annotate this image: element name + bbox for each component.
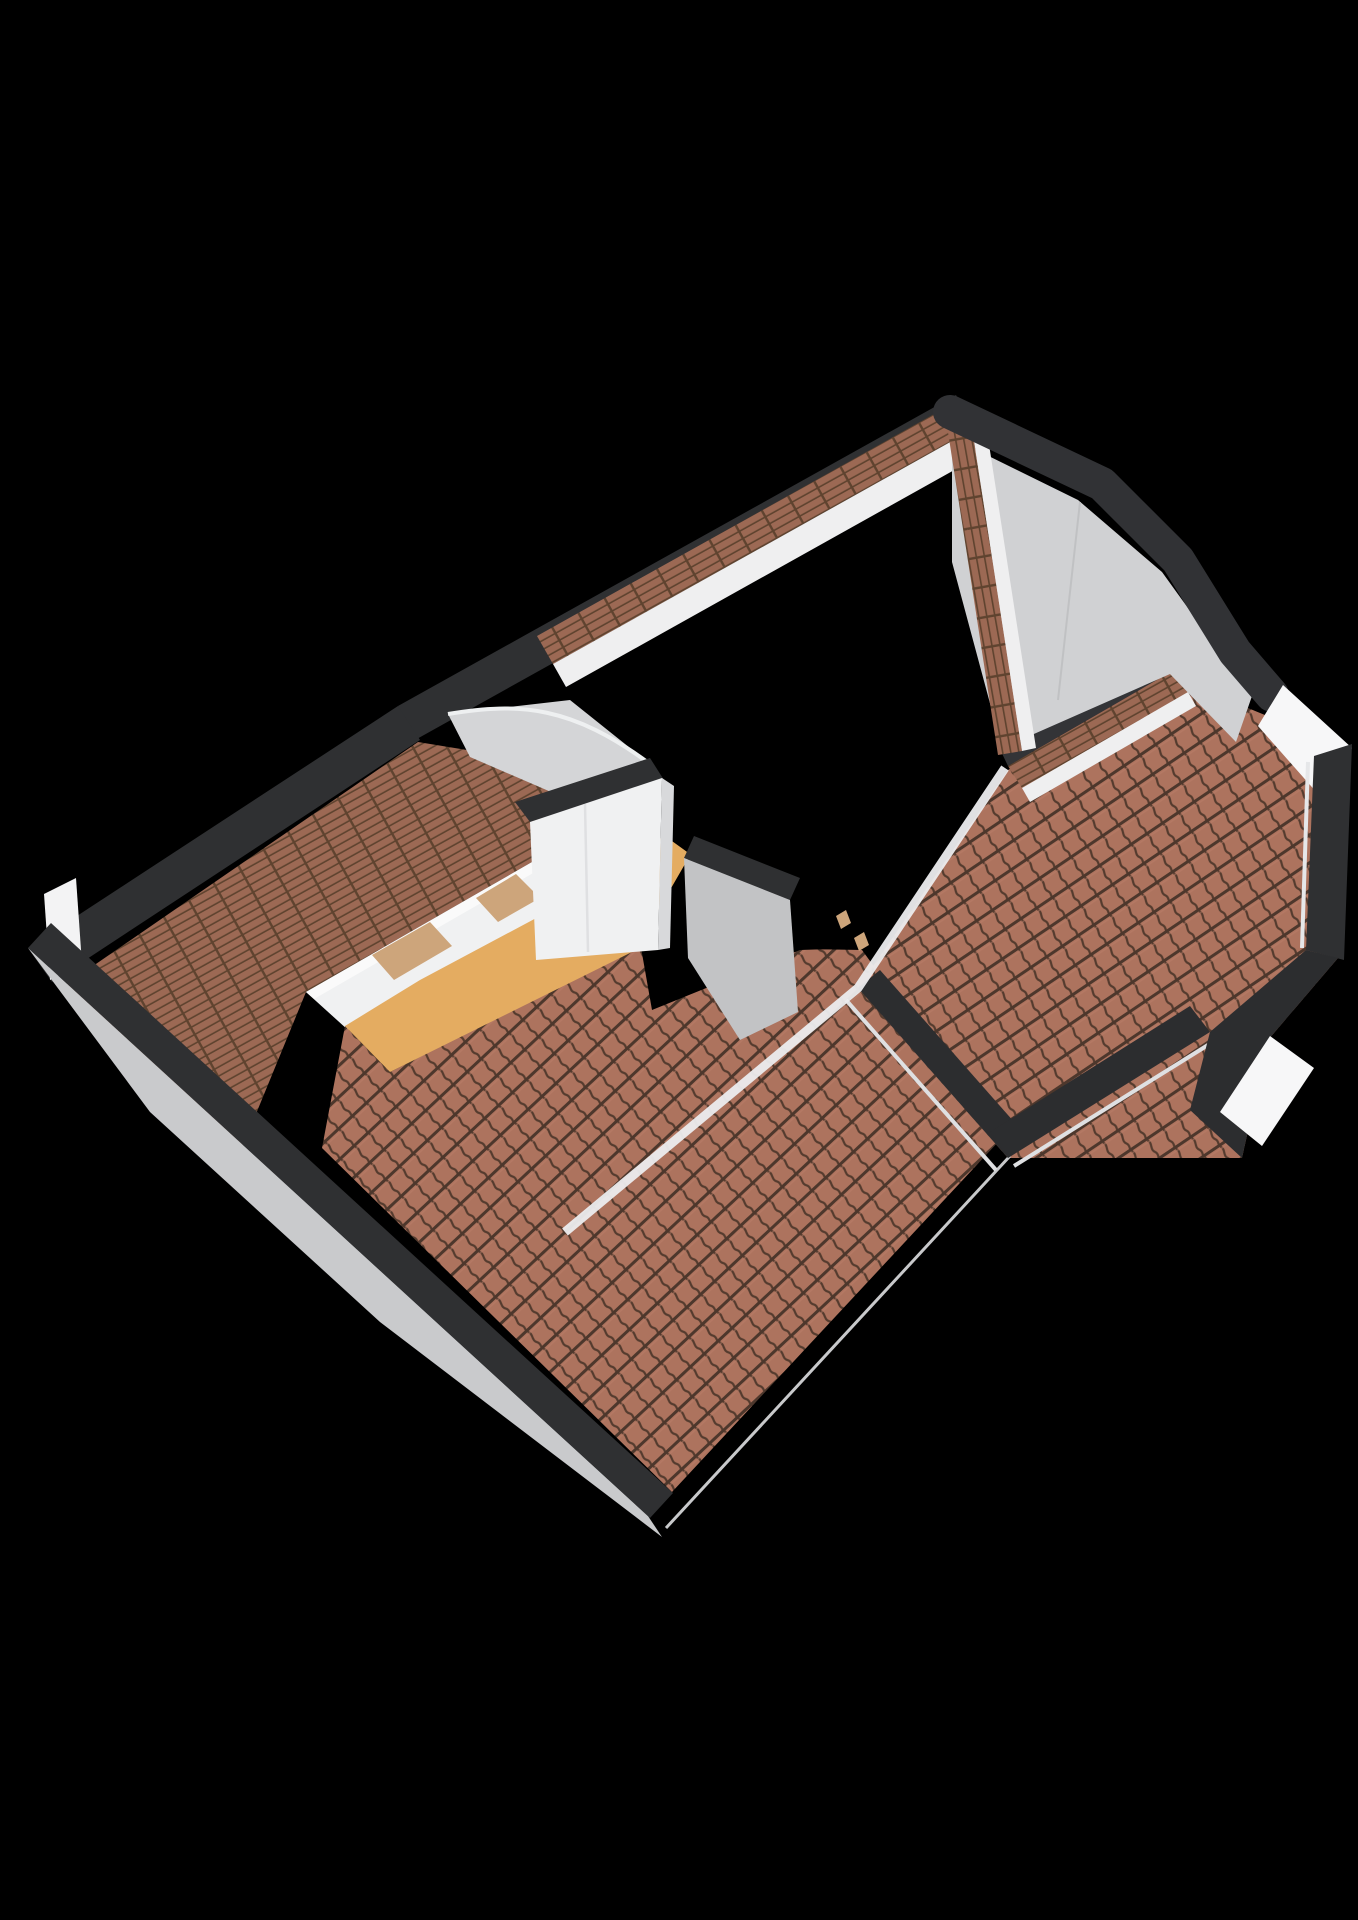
floorplan-3d-render (0, 0, 1358, 1920)
render-stage (0, 0, 1358, 1920)
